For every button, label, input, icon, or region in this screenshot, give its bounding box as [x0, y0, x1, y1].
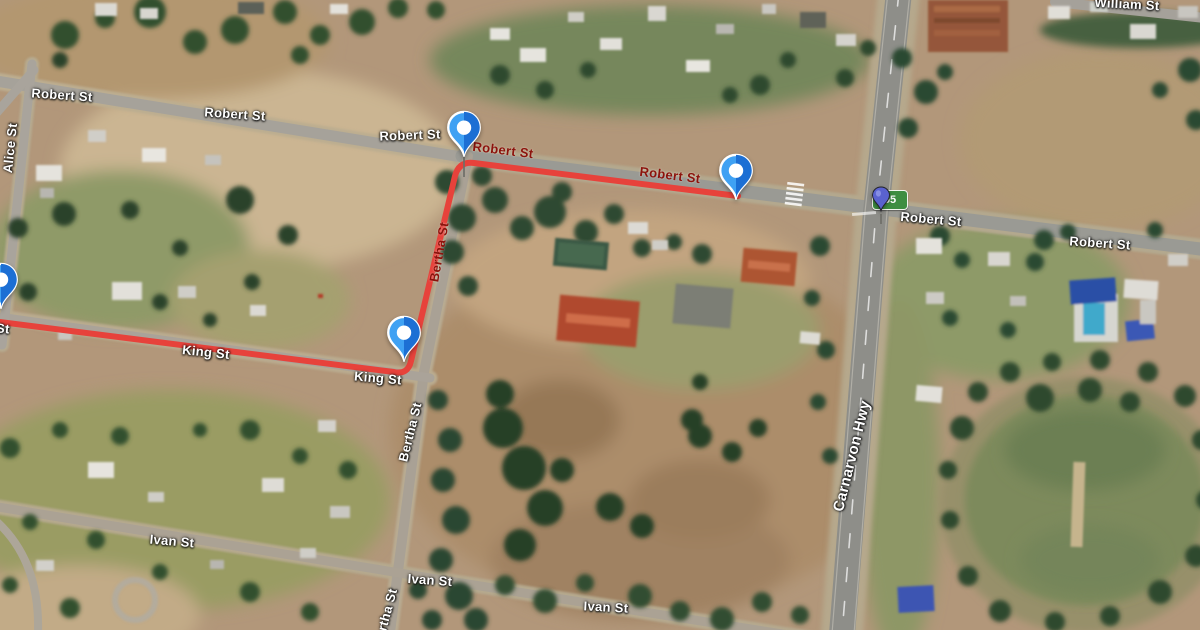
pin-carnarvon-hwy[interactable] [871, 186, 891, 216]
pin-stem [463, 155, 465, 177]
pin-robert-bertha-corner[interactable] [446, 110, 482, 157]
pin-king-bertha-corner[interactable] [386, 315, 422, 362]
pins-layer [0, 0, 1200, 630]
pin-robert-st-end[interactable] [718, 153, 754, 200]
map-canvas[interactable]: Robert StRobert StRobert StRobert StRobe… [0, 0, 1200, 630]
pin-king-st-west[interactable] [0, 262, 19, 309]
